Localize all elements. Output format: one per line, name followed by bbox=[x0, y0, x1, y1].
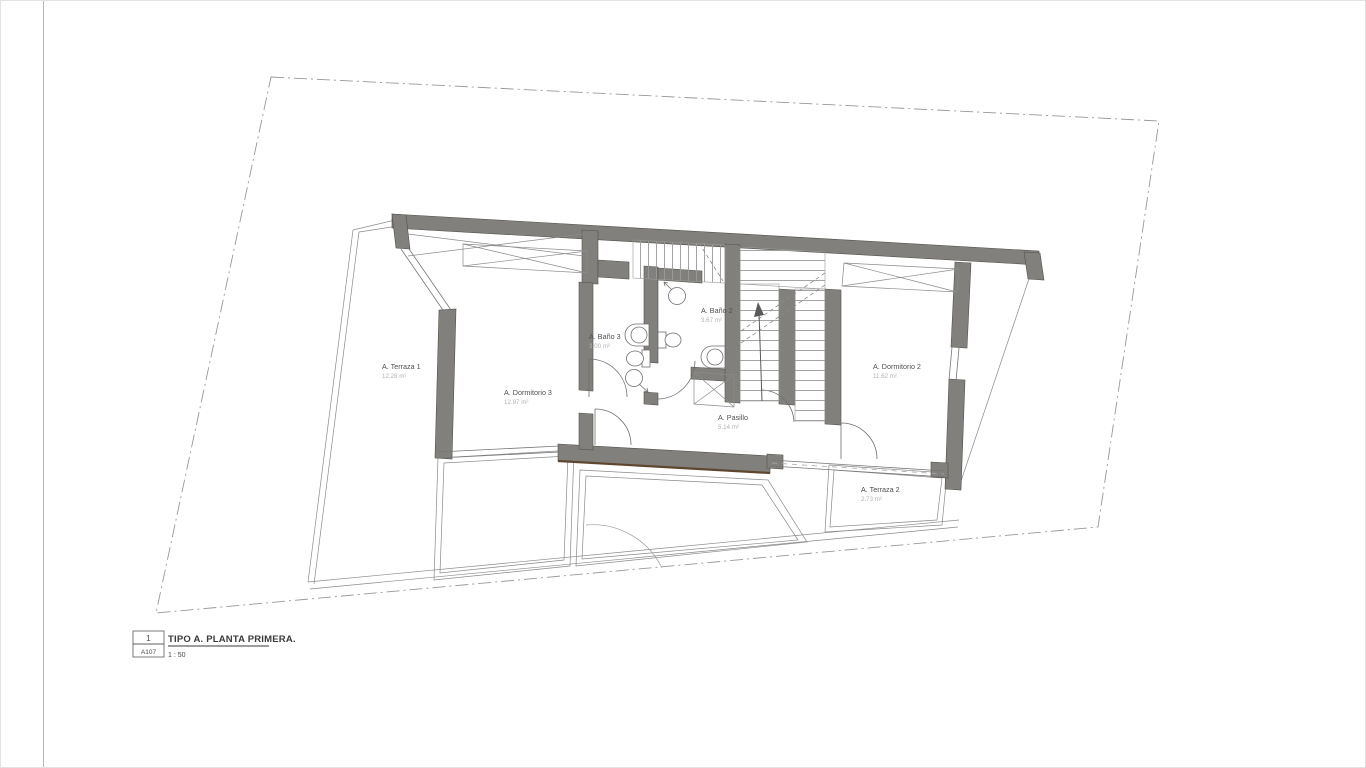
door-dorm3 bbox=[595, 409, 631, 445]
lower-room-mid-outer bbox=[576, 470, 807, 566]
room-label-dormitorio2: A. Dormitorio 2 bbox=[873, 362, 921, 371]
sink-bano3-basin bbox=[631, 327, 647, 343]
stair-top-flight bbox=[633, 240, 725, 283]
room-area-terraza1: 12.28 m² bbox=[382, 373, 406, 380]
stair-right-flight bbox=[795, 289, 825, 421]
room-area-pasillo: 5.14 m² bbox=[718, 424, 739, 431]
wall-dorm3-upper bbox=[582, 230, 598, 284]
stair-left-flight bbox=[740, 284, 779, 401]
wall-dorm2-left bbox=[825, 289, 841, 425]
terraza2-inner bbox=[830, 470, 942, 527]
door-dorm2 bbox=[841, 423, 877, 459]
room-area-bano2: 3.67 m² bbox=[701, 317, 722, 324]
door-bano3 bbox=[589, 359, 627, 397]
toilet-bano2-bowl bbox=[665, 333, 681, 347]
room-label-dormitorio3: A. Dormitorio 3 bbox=[504, 388, 552, 397]
lower-room-left-outer bbox=[434, 450, 574, 580]
drawing-scale: 1 : 50 bbox=[168, 652, 186, 659]
window-dorm2-right-a bbox=[949, 347, 952, 380]
room-label-pasillo: A. Pasillo bbox=[718, 413, 748, 422]
window-dorm2-bottom-dash bbox=[772, 463, 944, 474]
window-bottom-left-b bbox=[438, 452, 560, 458]
window-dorm2-bottom-a bbox=[771, 460, 945, 471]
title-block: 1 A107 TIPO A. PLANTA PRIMERA. 1 : 50 bbox=[133, 631, 296, 659]
stair-upper-treads bbox=[740, 247, 825, 289]
sink-bano2-basin bbox=[707, 349, 723, 365]
room-label-terraza2: A. Terraza 2 bbox=[861, 485, 900, 494]
window-dorm2-right-b bbox=[956, 348, 959, 381]
room-label-bano2: A. Baño 2 bbox=[701, 306, 733, 315]
door-bano2 bbox=[657, 361, 695, 399]
window-left-a bbox=[401, 249, 445, 313]
room-label-bano3: A. Baño 3 bbox=[589, 332, 621, 341]
toilet-bano3-bowl bbox=[627, 351, 644, 366]
wall-bano3-left-stub bbox=[579, 413, 593, 450]
wall-bano2-right bbox=[725, 244, 740, 403]
sheet-ref: A107 bbox=[141, 649, 157, 656]
window-bottom-left-a bbox=[438, 446, 560, 452]
room-label-terraza1: A. Terraza 1 bbox=[382, 362, 421, 371]
wall-bano3-top bbox=[598, 260, 629, 279]
room-area-terraza2: 2.73 m² bbox=[861, 496, 882, 503]
wall-dorm2-right-upper bbox=[951, 262, 971, 348]
wall-stair-center bbox=[779, 289, 795, 405]
room-area-dormitorio3: 12.97 m² bbox=[504, 399, 528, 406]
wall-bano3-bano2 bbox=[644, 266, 658, 363]
drawing-sheet: A. Terraza 1 12.28 m² A. Dormitorio 3 12… bbox=[0, 0, 1366, 768]
wall-left bbox=[435, 309, 456, 459]
detail-number: 1 bbox=[146, 634, 151, 643]
room-area-bano3: 3.00 m² bbox=[589, 343, 610, 350]
wall-bano-stub bbox=[644, 392, 658, 405]
terraza2-outer bbox=[825, 465, 947, 532]
shower-bano2 bbox=[669, 288, 686, 305]
shower-bano3 bbox=[626, 370, 643, 387]
room-area-dormitorio2: 11.62 m² bbox=[873, 373, 897, 380]
wall-top-right-stub bbox=[1024, 252, 1044, 280]
window-dorm2-bottom-b bbox=[771, 466, 945, 477]
drawing-title: TIPO A. PLANTA PRIMERA. bbox=[168, 634, 296, 645]
lower-room-left-inner bbox=[440, 456, 568, 573]
floor-plan-canvas: A. Terraza 1 12.28 m² A. Dormitorio 3 12… bbox=[1, 1, 1366, 768]
